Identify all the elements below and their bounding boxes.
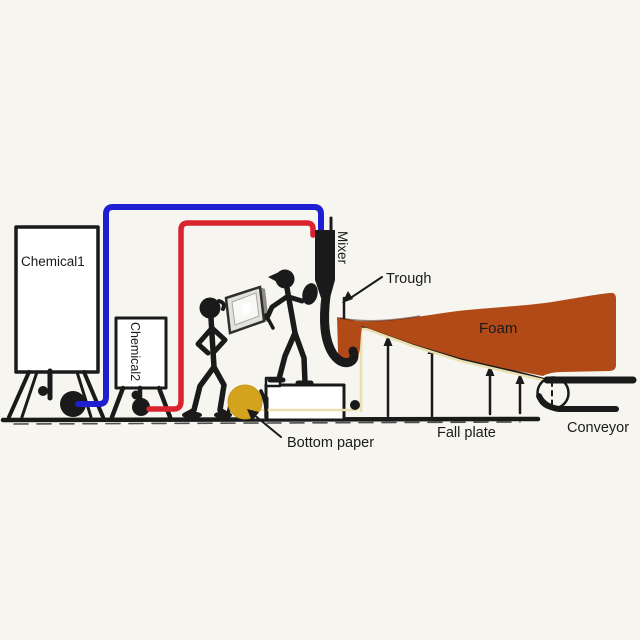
chemical2-leg [112, 388, 123, 417]
platform-box [266, 385, 344, 420]
worker-right-leg [295, 333, 305, 382]
chemical2-valve [132, 391, 141, 400]
chemical1-leg [9, 372, 29, 417]
conveyor-bottom-belt [539, 396, 616, 409]
chemical1-tank: Chemical1 [9, 227, 103, 417]
worker-right [266, 270, 320, 384]
chemical1-body [16, 227, 98, 372]
worker-left-torso [211, 318, 214, 367]
foam-process-diagram: Chemical1 Chemical2 [0, 0, 640, 640]
chemical1-leg [84, 372, 103, 417]
worker-left [182, 298, 232, 419]
control-panel [226, 287, 269, 333]
worker-left-shadow [182, 412, 202, 419]
mixer-label: Mixer [335, 231, 350, 265]
fall-plate-label: Fall plate [437, 425, 496, 441]
trough-pointer-line [349, 277, 382, 299]
chemical2-leg [159, 388, 170, 417]
worker-right-cap [268, 272, 279, 283]
foam-label: Foam [479, 320, 517, 337]
mixer-body [315, 230, 335, 280]
conveyor [538, 378, 634, 410]
bottom-paper-label: Bottom paper [287, 435, 374, 451]
chemical1-label: Chemical1 [21, 254, 85, 269]
chemical1-feed-pipe-blue [78, 207, 321, 404]
worker-right-arm [267, 296, 288, 318]
worker-left-shadow [214, 412, 232, 419]
paper-guide-roller [350, 400, 360, 410]
worker-left-leg [214, 367, 224, 410]
diagram-canvas: Chemical1 Chemical2 [0, 0, 640, 640]
worker-right-leg [279, 333, 295, 379]
trough-label: Trough [386, 271, 431, 287]
worker-left-leg [194, 367, 214, 410]
chemical2-label: Chemical2 [128, 322, 142, 381]
ground-texture [14, 422, 520, 424]
chemical2-tank: Chemical2 [112, 318, 170, 417]
conveyor-label: Conveyor [567, 420, 629, 436]
chemical1-valve [38, 386, 48, 396]
